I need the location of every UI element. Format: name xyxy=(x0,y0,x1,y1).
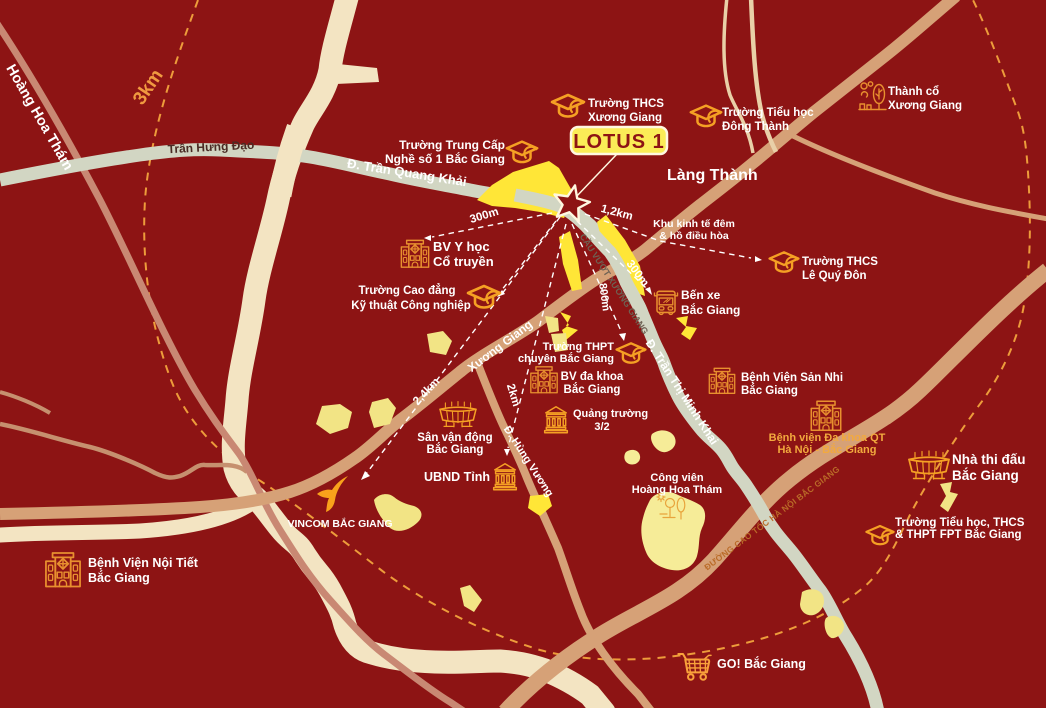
svg-text:chuyên Bắc Giang: chuyên Bắc Giang xyxy=(518,352,614,365)
svg-text:Trường Tiểu học: Trường Tiểu học xyxy=(722,107,814,119)
svg-text:Lê Quý Đôn: Lê Quý Đôn xyxy=(802,270,867,282)
svg-text:Sân vận động: Sân vận động xyxy=(417,432,492,444)
svg-text:GO! Bắc Giang: GO! Bắc Giang xyxy=(717,656,806,671)
svg-text:& hồ điều hòa: & hồ điều hòa xyxy=(659,230,729,242)
svg-text:Xương Giang: Xương Giang xyxy=(588,112,662,124)
svg-text:Bắc Giang: Bắc Giang xyxy=(681,302,740,317)
svg-text:Đông Thành: Đông Thành xyxy=(722,121,789,133)
svg-text:Nghề số 1 Bắc Giang: Nghề số 1 Bắc Giang xyxy=(385,151,505,166)
svg-text:Bắc Giang: Bắc Giang xyxy=(741,384,798,397)
svg-text:Trường Trung Cấp: Trường Trung Cấp xyxy=(399,138,505,152)
svg-text:Trường THPT: Trường THPT xyxy=(543,341,615,353)
svg-text:BV Y học: BV Y học xyxy=(433,239,490,254)
svg-text:Trường THCS: Trường THCS xyxy=(802,256,878,268)
svg-text:Bắc Giang: Bắc Giang xyxy=(564,383,621,396)
svg-text:Làng Thành: Làng Thành xyxy=(667,167,758,184)
svg-text:Khu kinh tế đêm: Khu kinh tế đêm xyxy=(653,218,735,230)
svg-text:Kỹ thuật Công nghiệp: Kỹ thuật Công nghiệp xyxy=(351,300,470,312)
svg-text:& THPT FPT Bắc Giang: & THPT FPT Bắc Giang xyxy=(895,528,1022,541)
svg-text:Bắc Giang: Bắc Giang xyxy=(427,443,484,456)
svg-text:Bệnh Viện Nội Tiết: Bệnh Viện Nội Tiết xyxy=(88,556,199,570)
svg-text:VINCOM BẮC GIANG: VINCOM BẮC GIANG xyxy=(288,517,393,530)
svg-text:Hà Nội - Bắc Giang: Hà Nội - Bắc Giang xyxy=(777,443,876,456)
svg-text:Hoàng Hoa Thám: Hoàng Hoa Thám xyxy=(632,484,723,496)
svg-text:Cổ truyền: Cổ truyền xyxy=(433,254,494,269)
svg-text:Bệnh viện Đa khoa QT: Bệnh viện Đa khoa QT xyxy=(769,432,886,444)
svg-text:Trường THCS: Trường THCS xyxy=(588,98,664,110)
svg-text:BV đa khoa: BV đa khoa xyxy=(561,371,624,383)
svg-text:Quảng trường: Quảng trường xyxy=(573,408,648,420)
svg-text:3/2: 3/2 xyxy=(594,421,609,433)
svg-text:UBND Tỉnh: UBND Tỉnh xyxy=(424,470,490,484)
svg-text:Nhà thi đấu: Nhà thi đấu xyxy=(952,452,1026,467)
svg-text:Bắc Giang: Bắc Giang xyxy=(952,468,1019,483)
svg-text:Bến xe: Bến xe xyxy=(681,288,721,302)
svg-text:LOTUS 1: LOTUS 1 xyxy=(573,131,664,153)
svg-text:Trường Cao đẳng: Trường Cao đẳng xyxy=(358,284,455,297)
svg-text:Bắc Giang: Bắc Giang xyxy=(88,570,150,585)
svg-text:Trường Tiểu học, THCS: Trường Tiểu học, THCS xyxy=(895,517,1025,529)
svg-text:Bệnh Viện Sản Nhi: Bệnh Viện Sản Nhi xyxy=(741,372,843,384)
svg-text:Thành cổ: Thành cổ xyxy=(888,86,939,98)
svg-text:Xương Giang: Xương Giang xyxy=(888,100,962,112)
svg-text:Công viên: Công viên xyxy=(650,472,703,484)
